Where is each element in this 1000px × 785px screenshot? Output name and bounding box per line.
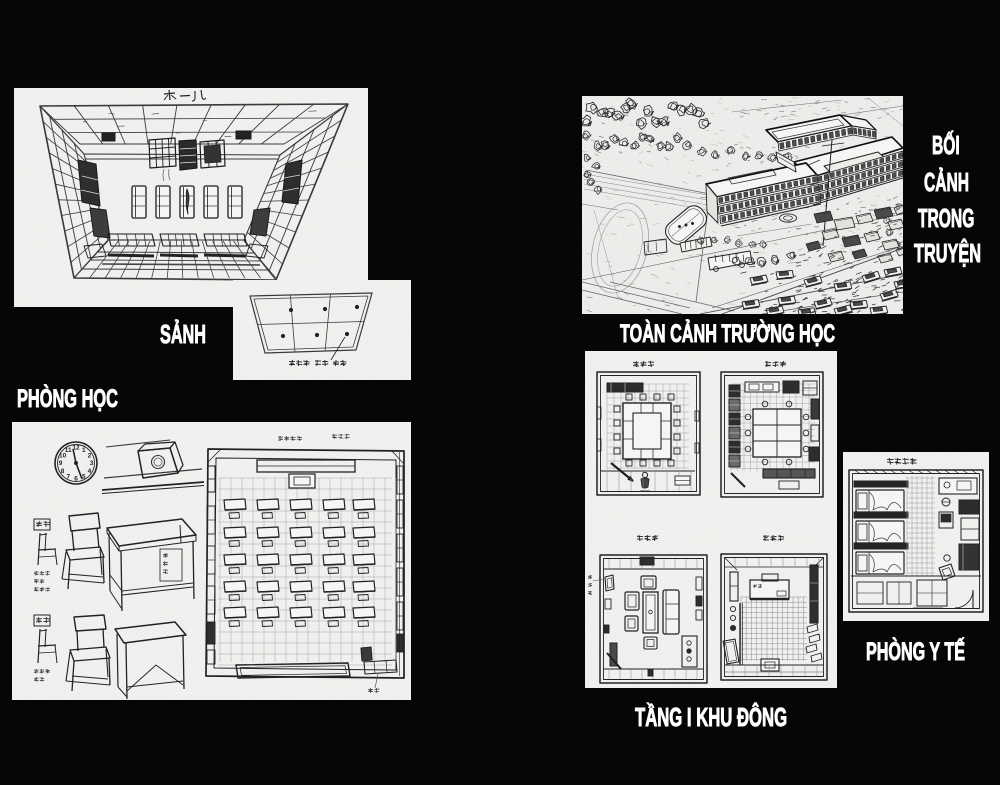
svg-text:3: 3: [90, 460, 94, 467]
svg-text:4: 4: [88, 468, 92, 475]
svg-text:11: 11: [65, 447, 72, 454]
svg-text:1: 1: [82, 447, 86, 454]
svg-text:8: 8: [61, 468, 65, 475]
svg-text:5: 5: [82, 474, 86, 481]
svg-text:6: 6: [74, 476, 78, 483]
svg-text:7: 7: [66, 474, 70, 481]
svg-text:9: 9: [59, 460, 63, 467]
svg-text:2: 2: [88, 453, 92, 460]
